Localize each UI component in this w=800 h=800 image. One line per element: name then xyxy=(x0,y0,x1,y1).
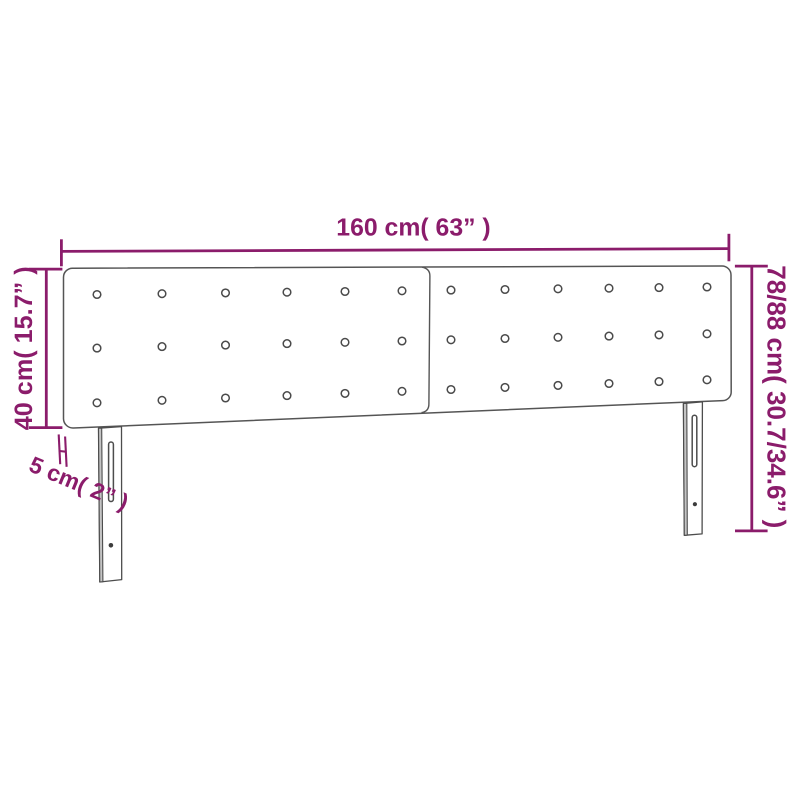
svg-text:160 cm( 63” ): 160 cm( 63” ) xyxy=(336,214,490,241)
svg-text:40 cm( 15.7” ): 40 cm( 15.7” ) xyxy=(10,266,38,430)
svg-text:78/88 cm( 30.7/34.6” ): 78/88 cm( 30.7/34.6” ) xyxy=(762,265,792,528)
